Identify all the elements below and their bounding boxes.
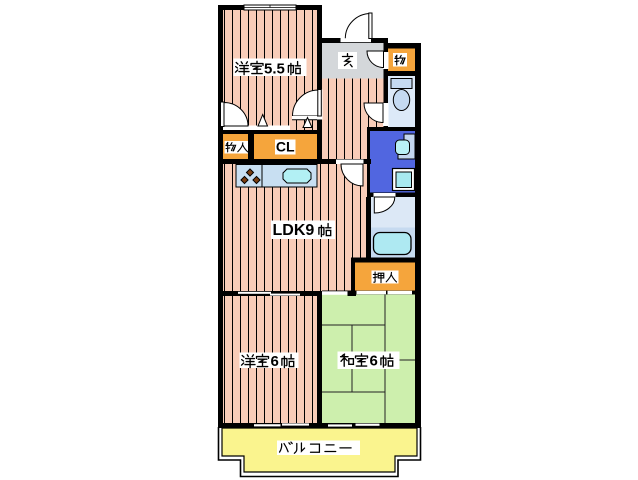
svg-text:6: 6 <box>271 353 279 370</box>
svg-text:CL: CL <box>276 139 295 155</box>
svg-text:6: 6 <box>370 353 378 370</box>
svg-text:5.5: 5.5 <box>264 61 285 78</box>
svg-text:LDK9: LDK9 <box>273 222 315 239</box>
